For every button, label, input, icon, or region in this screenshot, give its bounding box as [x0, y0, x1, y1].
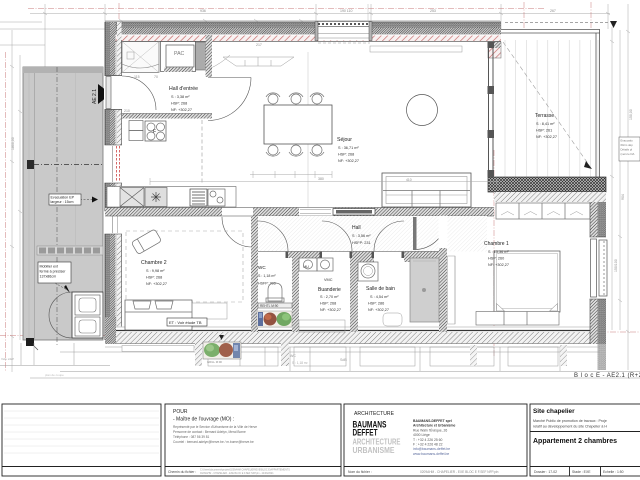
svg-text:137x86cm: 137x86cm [40, 275, 57, 279]
svg-text:S : 3,56 m²: S : 3,56 m² [352, 234, 371, 238]
svg-text:Détails pl: Détails pl [621, 148, 633, 152]
svg-text:HSP: 268: HSP: 268 [338, 153, 354, 157]
svg-text:HSP: 286: HSP: 286 [368, 302, 384, 306]
svg-text:Nom du fichier :: Nom du fichier : [348, 470, 372, 474]
svg-text:1800,00: 1800,00 [11, 137, 15, 150]
svg-text:B l o c E - AE2.1 (R+2: B l o c E - AE2.1 (R+2 [574, 373, 640, 379]
svg-text:Evacuatio: Evacuatio [621, 139, 634, 143]
svg-text:Evacuation EP: Evacuation EP [51, 196, 75, 200]
svg-text:253: 253 [430, 9, 436, 13]
svg-text:Chambre 1: Chambre 1 [484, 241, 509, 247]
svg-text:Appartement 2 chambres: Appartement 2 chambres [533, 438, 617, 445]
svg-text:SdB: SdB [340, 358, 347, 362]
svg-text:380: 380 [318, 177, 324, 181]
svg-text:Marché Public de promotion de: Marché Public de promotion de travaux : … [533, 419, 607, 423]
svg-text:HSP: 261: HSP: 261 [536, 129, 552, 133]
svg-text:(vers le DA: (vers le DA [621, 152, 635, 156]
svg-text:Représenté par le Service d'Ur: Représenté par le Service d'Urbanisme de… [173, 425, 257, 429]
svg-text:S : 36,71 m²: S : 36,71 m² [338, 146, 359, 150]
svg-text:ARCHITECTURE: ARCHITECTURE [354, 411, 395, 417]
svg-text:70: 70 [154, 75, 158, 79]
svg-text:Salle de bain: Salle de bain [366, 286, 395, 292]
svg-text:S : 8,41 m²: S : 8,41 m² [536, 122, 555, 126]
svg-text:Séjour: Séjour [337, 137, 352, 143]
svg-text:Personne de contact : Bernard: Personne de contact : Bernard Adelyn, Me… [173, 430, 246, 434]
svg-text:F : +32 4 226 48 22: F : +32 4 226 48 22 [413, 443, 443, 447]
svg-text:S : 13,36 m²: S : 13,36 m² [488, 250, 509, 254]
svg-text:NF: +302,27: NF: +302,27 [338, 159, 359, 163]
svg-text:4000 Liège: 4000 Liège [413, 433, 430, 437]
svg-text:WC: WC [258, 265, 266, 270]
svg-text:Vide s/EP: Vide s/EP [1, 357, 14, 361]
svg-text:Téléphone : 087 56 39 81: Téléphone : 087 56 39 81 [173, 435, 210, 439]
svg-text:Hall d'entrée: Hall d'entrée [169, 86, 198, 92]
svg-text:190 110: 190 110 [340, 9, 352, 13]
svg-text:- Maître de l'ouvrage (MO) :: - Maître de l'ouvrage (MO) : [173, 417, 234, 423]
svg-text:fermé à préciser: fermé à préciser [40, 270, 67, 274]
svg-text:WC: WC [290, 354, 296, 358]
svg-text:NF: +302,27: NF: +302,27 [146, 282, 167, 286]
svg-text:Dossier : 17-02: Dossier : 17-02 [534, 470, 557, 474]
svg-text:S : 3,38 m²: S : 3,38 m² [171, 95, 190, 99]
svg-text:POUR: POUR [173, 409, 188, 415]
svg-text:PAC: PAC [174, 51, 185, 57]
svg-text:Echelle : 1:50: Echelle : 1:50 [603, 470, 624, 474]
svg-text:Rue Waln l'Évêque, 26: Rue Waln l'Évêque, 26 [413, 427, 447, 432]
svg-text:60cm dép: 60cm dép [621, 143, 634, 147]
svg-text:Courriel : bernard.adelyn@herv: Courriel : bernard.adelyn@herve.be / m.b… [173, 440, 254, 444]
svg-text:S : 9,98 m²: S : 9,98 m² [146, 269, 165, 273]
svg-text:904: 904 [621, 194, 625, 200]
svg-text:NF: +302,27: NF: +302,27 [368, 308, 389, 312]
svg-text:T : +32 4 226 25 60: T : +32 4 226 25 60 [413, 438, 443, 442]
svg-text:GRILL M:90: GRILL M:90 [207, 360, 222, 364]
svg-text:150/100: 150/100 [614, 259, 618, 272]
svg-text:VMC: VMC [324, 278, 333, 282]
svg-text:ET : Voir étude TB: ET : Voir étude TB [169, 320, 202, 325]
svg-text:F: F [153, 129, 156, 135]
svg-text:267: 267 [550, 9, 556, 13]
svg-text:Terrasse: Terrasse [535, 113, 554, 119]
svg-text:NF: +302,27: NF: +302,27 [488, 263, 509, 267]
svg-text:\0209AHM - CHAPELIER - EXE BLO: \0209AHM - CHAPELIER - EXE BLOC E F.SEF … [200, 472, 274, 475]
svg-text:HSP: 268: HSP: 268 [146, 276, 162, 280]
svg-text:www.baumans-deffet.be: www.baumans-deffet.be [413, 452, 449, 456]
svg-text:217: 217 [256, 43, 262, 47]
svg-text:150,00: 150,00 [629, 109, 633, 120]
svg-text:info@baumans-deffet.be: info@baumans-deffet.be [413, 447, 450, 451]
svg-text:NF: +302,27: NF: +302,27 [536, 135, 557, 139]
svg-text:plan de coupe: plan de coupe [45, 373, 64, 377]
svg-text:210: 210 [124, 109, 130, 113]
svg-text:Chambre 2: Chambre 2 [141, 260, 167, 266]
svg-text:Site chapelier: Site chapelier [533, 408, 575, 415]
svg-text:largeur : 15cm: largeur : 15cm [51, 200, 74, 204]
svg-text:HSP: 268: HSP: 268 [171, 102, 187, 106]
svg-text:S : 1,18 m²: S : 1,18 m² [258, 274, 276, 278]
svg-text:HSP: 260: HSP: 260 [488, 257, 504, 261]
svg-text:URBANISME: URBANISME [353, 445, 395, 455]
svg-text:Mobilier ext: Mobilier ext [40, 265, 58, 269]
svg-text:REHTL M:90: REHTL M:90 [260, 304, 279, 308]
svg-text:Hall: Hall [352, 225, 361, 231]
svg-text:936: 936 [200, 9, 206, 13]
svg-text:NF: +302,27: NF: +302,27 [320, 308, 341, 312]
svg-text:Architecture et Urbanisme: Architecture et Urbanisme [413, 424, 456, 428]
svg-text:Stade : EXE: Stade : EXE [572, 470, 591, 474]
svg-text:AE 2.1: AE 2.1 [92, 89, 98, 104]
svg-text:HSFP: 231: HSFP: 231 [352, 241, 371, 245]
svg-text:S : 1,18 m²: S : 1,18 m² [292, 361, 308, 365]
svg-text:relatif au développement du si: relatif au développement du site Chapeli… [533, 425, 607, 429]
svg-text:S : 4,54 m²: S : 4,54 m² [370, 295, 389, 299]
svg-text:HSP: 268: HSP: 268 [320, 302, 336, 306]
svg-text:NF: +302,27: NF: +302,27 [171, 108, 192, 112]
svg-text:S : 2,70 m²: S : 2,70 m² [320, 295, 339, 299]
svg-text:BAUMANS-DEFFET sprl: BAUMANS-DEFFET sprl [413, 419, 452, 423]
svg-text:0209AHM - CHAPELIER - EXE BLOC: 0209AHM - CHAPELIER - EXE BLOC E F.SEF N… [420, 470, 499, 474]
svg-text:Chemin du fichier :: Chemin du fichier : [168, 470, 196, 474]
svg-text:Buanderie: Buanderie [318, 287, 341, 293]
